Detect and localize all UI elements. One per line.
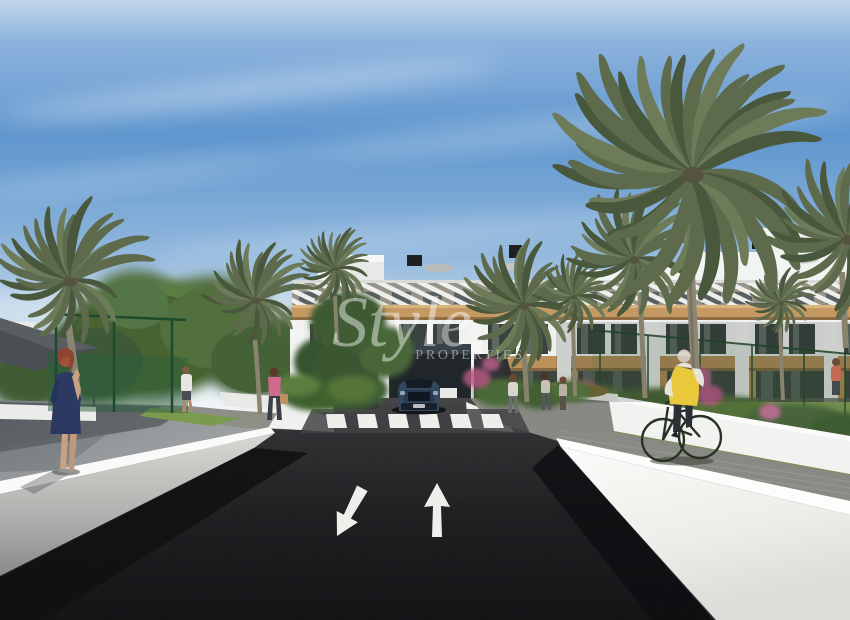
svg-text:PROPERTIES: PROPERTIES	[415, 348, 525, 363]
